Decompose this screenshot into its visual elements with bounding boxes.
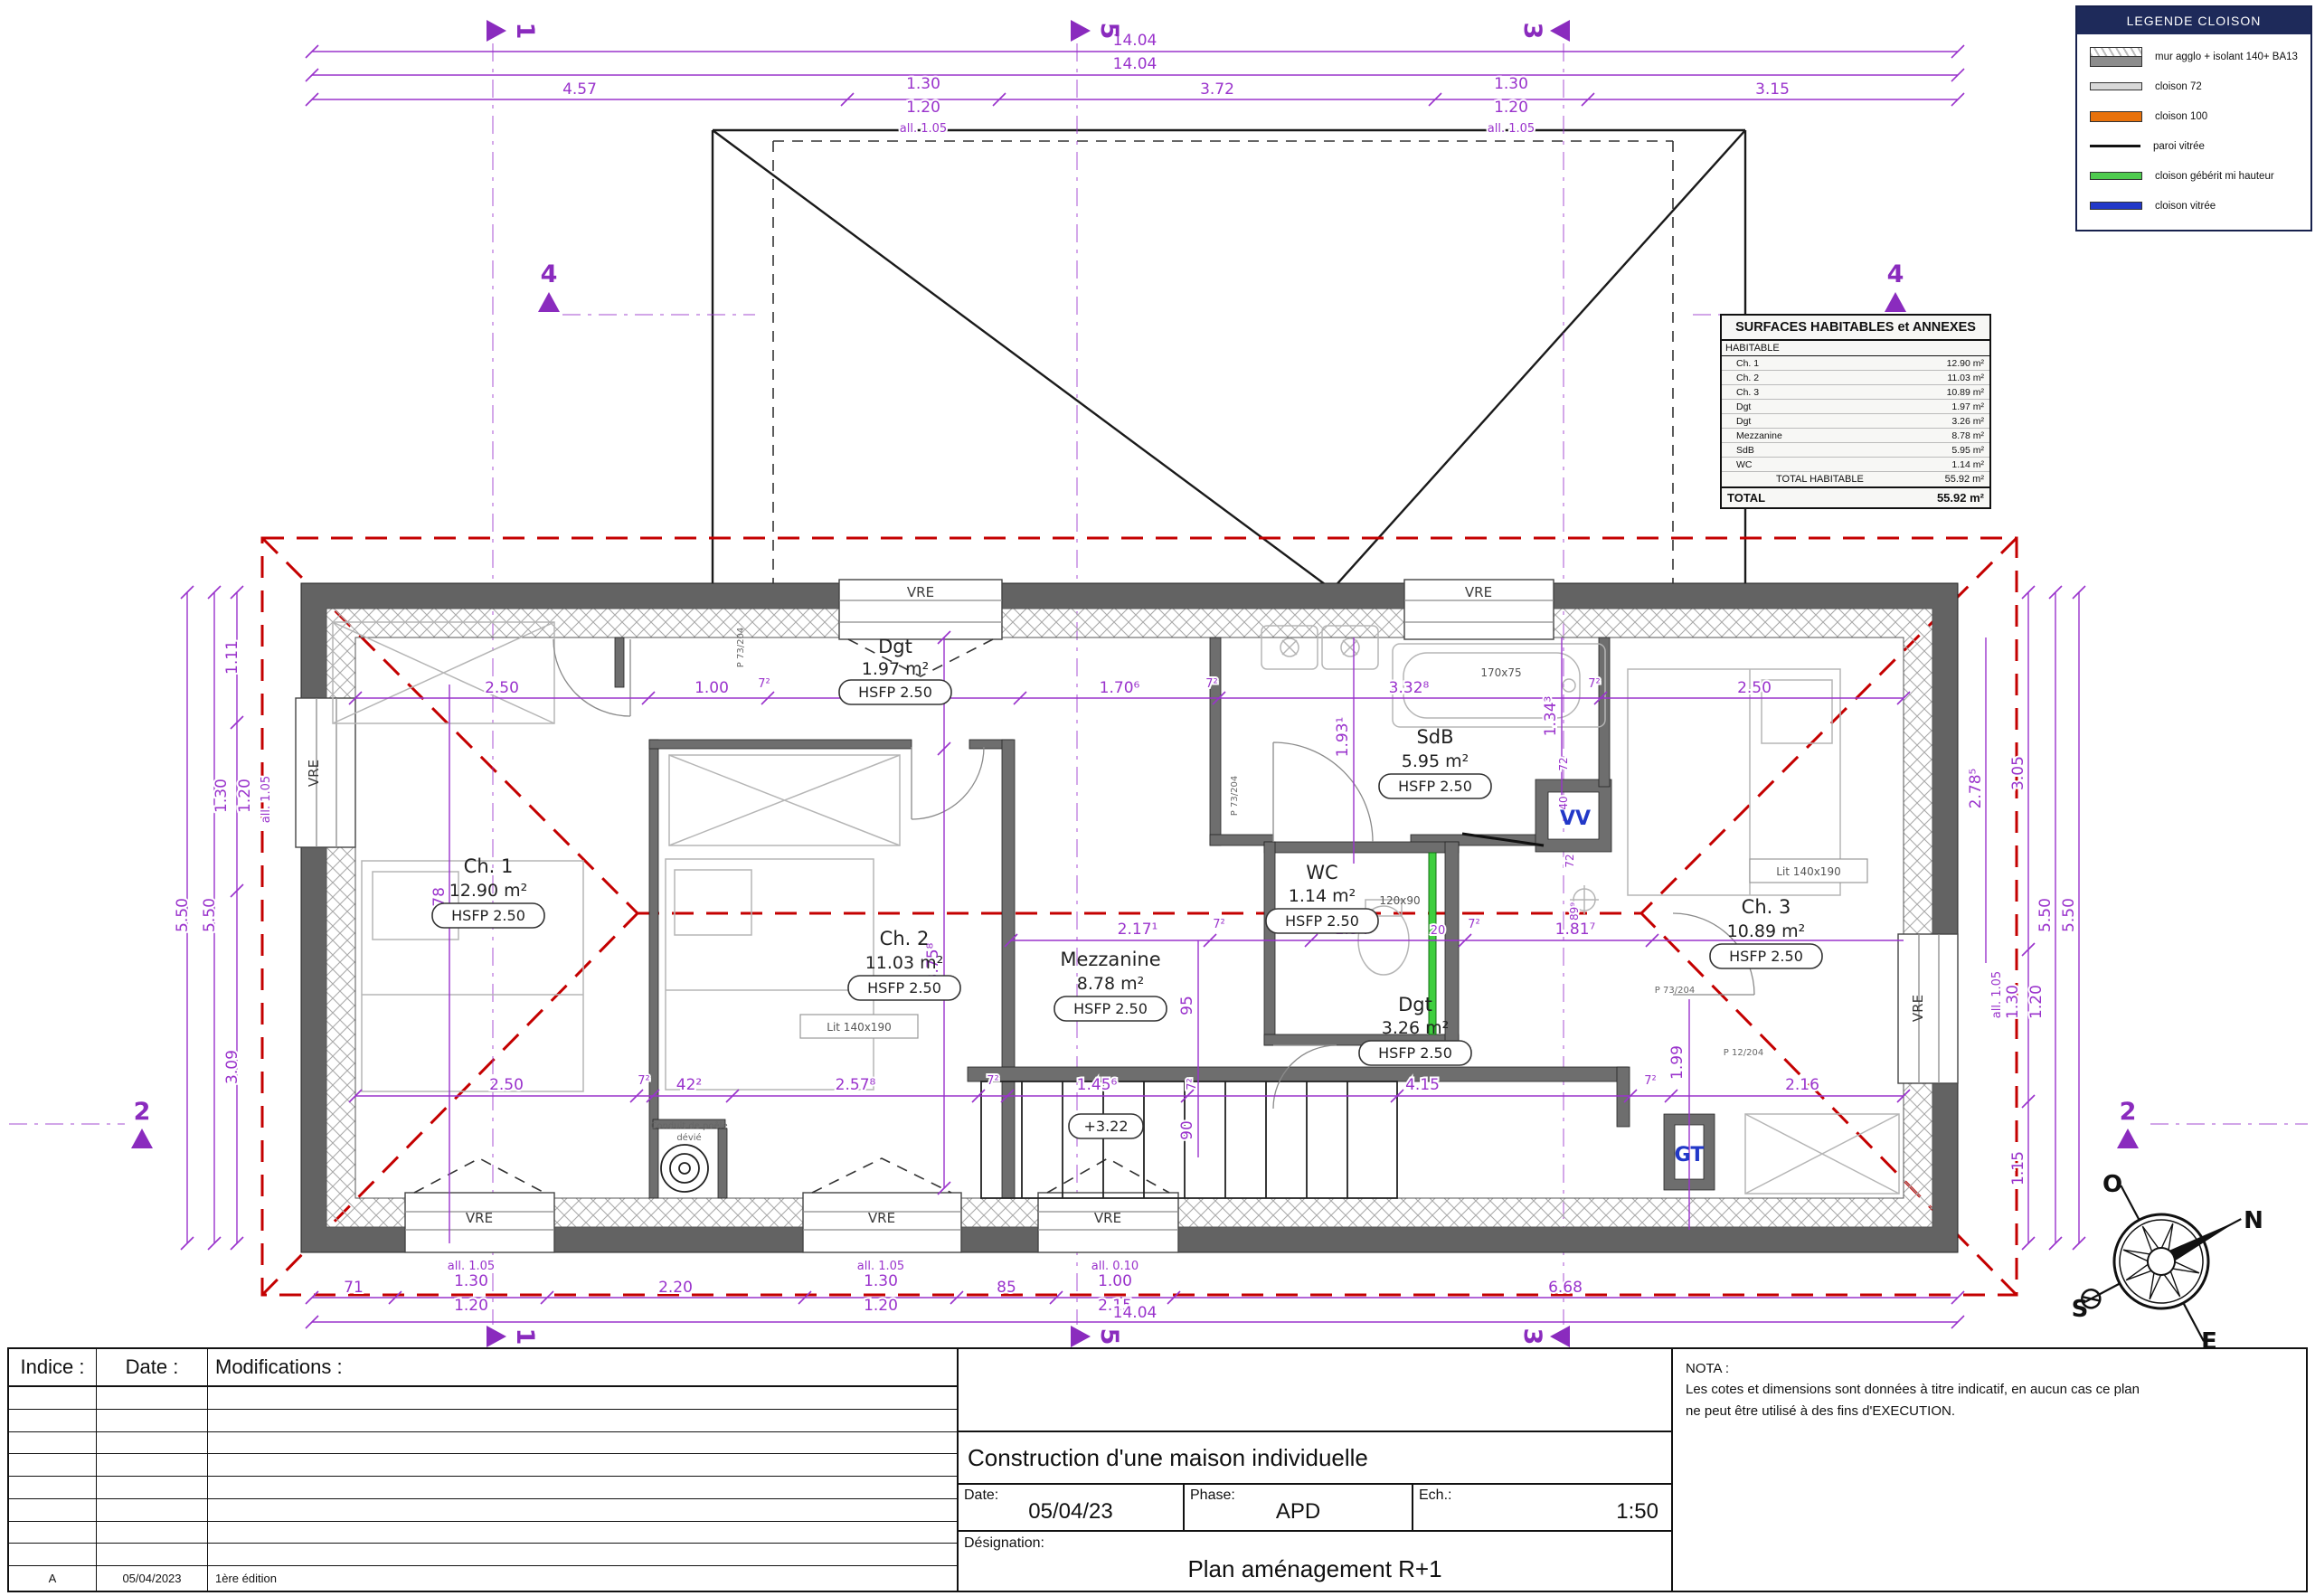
project-title: Construction d'une maison individuelle — [959, 1432, 1671, 1485]
section-marker-3-bottom: 3 — [1518, 1328, 1546, 1346]
date-header: Date : — [97, 1349, 208, 1385]
nota-line-1: Les cotes et dimensions sont données à t… — [1686, 1379, 2293, 1400]
section-marker-4-left: 4 — [541, 260, 558, 288]
dim: all. 1.05 — [1990, 971, 2004, 1018]
compass-south-label: S — [2072, 1296, 2089, 1323]
room-hsfp: HSFP 2.50 — [1378, 1044, 1452, 1062]
row-label: Ch. 2 — [1736, 373, 1759, 383]
room-area: 11.03 m² — [865, 953, 944, 973]
row-label: SdB — [1736, 445, 1754, 456]
dim: 7² — [1213, 918, 1224, 931]
bathtub-size-label: 170x75 — [1480, 666, 1521, 679]
room-area: 10.89 m² — [1727, 921, 1806, 941]
scale-value: 1:50 — [1413, 1499, 1658, 1525]
table-row: Ch. 112.90 m² — [1722, 356, 1989, 371]
dim: all. 1.05 — [1488, 122, 1535, 136]
room-name: Mezzanine — [1060, 949, 1160, 970]
section-marker-1-top: 1 — [511, 23, 539, 40]
door-code: P 12/204 — [1724, 1048, 1763, 1058]
project-block-spacer — [959, 1349, 1671, 1432]
dim: 7² — [758, 677, 770, 691]
row-label: Ch. 3 — [1736, 387, 1759, 398]
bed-ch2 — [666, 859, 874, 1090]
phase-cell: Phase: APD — [1185, 1485, 1413, 1530]
dim: 1.20 — [2027, 985, 2046, 1019]
dim: 14.04 — [1113, 55, 1157, 73]
room-hsfp: HSFP 2.50 — [1285, 912, 1359, 930]
dim: 1.20 — [454, 1297, 488, 1315]
window-left: VRE — [296, 698, 355, 847]
legend-title: LEGENDE CLOISON — [2077, 7, 2310, 34]
room-sdb: SdB 5.95 m² HSFP 2.50 — [1379, 726, 1491, 798]
row-value: 10.89 m² — [1947, 387, 1984, 398]
row-value: 5.95 m² — [1951, 445, 1984, 456]
subtotal-value: 55.92 m² — [1945, 474, 1984, 485]
table-row: Mezzanine8.78 m² — [1722, 429, 1989, 443]
designation-cell: Désignation: Plan aménagement R+1 — [959, 1532, 1671, 1591]
legend-item-mur: mur agglo + isolant 140+ BA13 — [2090, 42, 2305, 71]
room-hsfp: HSFP 2.50 — [1073, 1000, 1148, 1017]
dim: 1.20 — [906, 99, 940, 117]
room-hsfp: HSFP 2.50 — [451, 907, 525, 924]
dim: 1.20 — [1494, 99, 1528, 117]
total-value: 55.92 m² — [1937, 491, 1984, 505]
table-row: Ch. 211.03 m² — [1722, 371, 1989, 385]
dim: 1.30 — [2004, 985, 2022, 1019]
dim: 7² — [1644, 1074, 1656, 1088]
legend-item-cloison-vitree: cloison vitrée — [2090, 191, 2305, 221]
floor-plan-canvas: VRE VRE VRE VRE VRE VRE — [0, 0, 2315, 1347]
row-label: Mezzanine — [1736, 430, 1782, 441]
dim: 1.00 — [1098, 1272, 1132, 1290]
dim: 5.50 — [2060, 898, 2078, 932]
wardrobe-ch2 — [669, 755, 900, 845]
dim: 1.30 — [1494, 75, 1528, 93]
dim: 2.50 — [489, 1076, 524, 1094]
window-label: VRE — [1094, 1210, 1121, 1226]
dim: 4.57 — [562, 80, 597, 99]
room-name: Ch. 1 — [464, 855, 514, 877]
bed-size-label: Lit 140x190 — [1776, 865, 1840, 878]
room-wc: WC 1.14 m² HSFP 2.50 — [1266, 862, 1378, 933]
dim: 1.93¹ — [1334, 717, 1352, 758]
dim: 5.50 — [201, 898, 219, 932]
door-code: P 73/204 — [1230, 776, 1240, 816]
dim: 72 — [1564, 854, 1576, 867]
date-cell: Date: 05/04/23 — [959, 1485, 1185, 1530]
project-block: Construction d'une maison individuelle D… — [959, 1349, 1673, 1591]
legend-item-label: mur agglo + isolant 140+ BA13 — [2155, 52, 2298, 62]
room-mezzanine: Mezzanine 8.78 m² HSFP 2.50 — [1054, 949, 1167, 1021]
window-label: VRE — [1465, 584, 1492, 600]
indice-header: Indice : — [9, 1349, 97, 1385]
dim: 2.17¹ — [1118, 921, 1158, 939]
dim: 7² — [1588, 677, 1600, 691]
dim: 72 — [1557, 757, 1570, 770]
revision-empty-row — [9, 1432, 957, 1455]
legend-cloison: LEGENDE CLOISON mur agglo + isolant 140+… — [2075, 5, 2312, 231]
revision-empty-row — [9, 1387, 957, 1410]
dim: 90 — [1178, 1120, 1196, 1140]
room-area: 8.78 m² — [1077, 974, 1144, 994]
drawing-sheet: VRE VRE VRE VRE VRE VRE — [0, 0, 2315, 1596]
dim: 71 — [344, 1279, 364, 1297]
dim: 1.11 — [223, 640, 241, 675]
row-value: 8.78 m² — [1951, 430, 1984, 441]
revision-empty-row — [9, 1410, 957, 1432]
roof-projection-lines — [713, 130, 1745, 590]
revision-empty-row — [9, 1499, 957, 1522]
project-meta-row: Date: 05/04/23 Phase: APD Ech.: 1:50 — [959, 1485, 1671, 1532]
revision-modification: 1ère édition — [208, 1566, 957, 1591]
compass-north-label: N — [2244, 1207, 2263, 1234]
table-row: Dgt1.97 m² — [1722, 400, 1989, 414]
legend-swatch-cloison100-icon — [2090, 111, 2142, 122]
legend-swatch-cloison72-icon — [2090, 82, 2142, 90]
legend-swatch-geberit-icon — [2090, 172, 2142, 180]
row-label: Dgt — [1736, 416, 1751, 427]
row-label: Dgt — [1736, 401, 1751, 412]
window-label: VRE — [907, 584, 934, 600]
revision-indice: A — [9, 1566, 97, 1591]
table-row: WC1.14 m² — [1722, 458, 1989, 472]
room-area: 5.95 m² — [1402, 751, 1469, 771]
room-name: Ch. 2 — [880, 928, 930, 949]
dim: 1.20 — [864, 1297, 898, 1315]
dim: 1.30 — [906, 75, 940, 93]
revision-empty-row — [9, 1477, 957, 1499]
crossed-box-ch3 — [1745, 1114, 1899, 1194]
nota-line-2: ne peut être utilisé à des fins d'EXECUT… — [1686, 1401, 2293, 1421]
window-top-2: VRE — [1404, 580, 1554, 639]
section-marker-1-bottom: 1 — [511, 1328, 539, 1346]
dim: 2.16 — [1785, 1076, 1819, 1094]
designation-label: Désignation: — [964, 1535, 1044, 1552]
compass-east-label: E — [2201, 1328, 2217, 1347]
section-marker-4-right: 4 — [1887, 260, 1904, 288]
legend-swatch-mur-icon — [2090, 47, 2142, 67]
room-name: Dgt — [878, 636, 912, 657]
vv-shaft-label: VV — [1560, 807, 1591, 830]
dim: all. 0.10 — [1091, 1260, 1139, 1273]
dim: 2.78⁵ — [1967, 769, 1985, 809]
compass-west-label: O — [2102, 1171, 2122, 1198]
dim: 7² — [1205, 677, 1217, 691]
window-label: VRE — [1910, 995, 1926, 1022]
row-value: 3.26 m² — [1951, 416, 1984, 427]
dim: 2.57⁸ — [836, 1076, 876, 1094]
room-labels: Ch. 1 12.90 m² HSFP 2.50 Ch. 2 11.03 m² … — [432, 636, 1822, 1065]
level-label: +3.22 — [1083, 1118, 1128, 1135]
legend-item-cloison100: cloison 100 — [2090, 101, 2305, 131]
designation-value: Plan aménagement R+1 — [959, 1555, 1671, 1583]
title-block: Indice : Date : Modifications : A 05/04/… — [7, 1347, 2308, 1592]
window-bottom-2: VRE — [803, 1158, 961, 1252]
surfaces-section: HABITABLE — [1722, 341, 1989, 356]
revision-empty-row — [9, 1544, 957, 1566]
modifications-header: Modifications : — [208, 1349, 957, 1385]
room-area: 1.14 m² — [1289, 886, 1356, 906]
dim: 1.45⁶ — [1077, 1076, 1118, 1094]
dim: 2.50 — [1737, 679, 1772, 697]
dim: all. 1.05 — [900, 122, 947, 136]
dim: 89⁹ — [1568, 902, 1581, 921]
dim: 1.30 — [864, 1272, 898, 1290]
door-code: P 73/204 — [1655, 986, 1695, 996]
dim: 1.30 — [454, 1272, 488, 1290]
dim: 14.04 — [1113, 1304, 1157, 1322]
legend-item-geberit: cloison gébérit mi hauteur — [2090, 161, 2305, 191]
dim: 6.68 — [1548, 1279, 1583, 1297]
dim: 1.70⁶ — [1100, 679, 1140, 697]
room-hsfp: HSFP 2.50 — [858, 684, 932, 701]
row-value: 1.97 m² — [1951, 401, 1984, 412]
section-marker-3-top: 3 — [1518, 23, 1546, 40]
stove-conduit-label: Conduit de poêle — [650, 1120, 727, 1131]
row-value: 11.03 m² — [1947, 373, 1984, 383]
dim: 2.50 — [485, 679, 519, 697]
row-label: WC — [1736, 459, 1753, 470]
stove-conduit-label-2: dévié — [676, 1132, 701, 1143]
dim: 1.30 — [213, 779, 231, 813]
surfaces-subtotal-row: TOTAL HABITABLE55.92 m² — [1722, 472, 1989, 488]
room-name: SdB — [1416, 726, 1453, 748]
dim: 5.50 — [2036, 898, 2055, 932]
room-area: 12.90 m² — [449, 881, 528, 901]
table-row: SdB5.95 m² — [1722, 443, 1989, 458]
section-marker-2-left: 2 — [134, 1098, 151, 1126]
dim: all. 1.05 — [857, 1260, 904, 1273]
room-hsfp: HSFP 2.50 — [1729, 948, 1803, 965]
furniture — [333, 622, 1899, 1194]
dim: 3.05 — [2009, 756, 2027, 790]
stove-conduit — [661, 1145, 708, 1192]
row-value: 12.90 m² — [1947, 358, 1984, 369]
nota-block: NOTA : Les cotes et dimensions sont donn… — [1673, 1349, 2306, 1591]
surfaces-total-row: TOTAL55.92 m² — [1722, 488, 1989, 507]
dim: 5.50 — [174, 898, 192, 932]
legend-swatch-vitree-icon — [2090, 202, 2142, 210]
dim: 3.09 — [223, 1050, 241, 1084]
dim: 3.32⁸ — [1389, 679, 1430, 697]
dim: 3.15 — [1755, 80, 1790, 99]
subtotal-label: TOTAL HABITABLE — [1776, 474, 1864, 485]
dim: 4.15 — [1405, 1076, 1440, 1094]
dim: all. 1.05 — [260, 776, 273, 823]
date-value: 05/04/23 — [959, 1499, 1183, 1525]
revision-row-a: A 05/04/2023 1ère édition — [9, 1566, 957, 1591]
row-value: 1.14 m² — [1951, 459, 1984, 470]
revision-table: Indice : Date : Modifications : A 05/04/… — [9, 1349, 959, 1591]
dim: 7² — [1186, 1078, 1199, 1090]
window-label: VRE — [306, 760, 322, 787]
window-label: VRE — [868, 1210, 895, 1226]
phase-value: APD — [1185, 1499, 1412, 1525]
revision-empty-row — [9, 1522, 957, 1544]
window-bottom-3: VRE — [1038, 1158, 1178, 1252]
dim: 1.15 — [2009, 1151, 2027, 1185]
legend-item-label: cloison 72 — [2155, 81, 2202, 92]
room-hsfp: HSFP 2.50 — [867, 979, 941, 996]
total-label: TOTAL — [1727, 491, 1765, 505]
dim: 42² — [676, 1076, 702, 1094]
room-ch3: Ch. 3 10.89 m² HSFP 2.50 — [1710, 896, 1822, 968]
revision-header-row: Indice : Date : Modifications : — [9, 1349, 957, 1387]
legend-item-label: cloison vitrée — [2155, 201, 2216, 212]
window-right: VRE — [1898, 934, 1958, 1083]
dim: 85 — [997, 1279, 1016, 1297]
dim: all. 1.05 — [448, 1260, 495, 1273]
section-marker-2-right: 2 — [2120, 1098, 2137, 1126]
surfaces-table: SURFACES HABITABLES et ANNEXES HABITABLE… — [1720, 314, 1991, 509]
room-area: 1.97 m² — [862, 659, 929, 679]
dim: 7² — [638, 1074, 649, 1088]
legend-item-label: cloison 100 — [2155, 111, 2207, 122]
section-marker-5-top: 5 — [1095, 23, 1123, 40]
dim: 7² — [987, 1074, 998, 1088]
dim: 1.81⁷ — [1555, 921, 1596, 939]
revision-empty-row — [9, 1454, 957, 1477]
scale-cell: Ech.: 1:50 — [1413, 1485, 1671, 1530]
roof-window-size-label: 120x90 — [1379, 894, 1420, 907]
dim: 1.34³ — [1542, 696, 1560, 737]
nota-title: NOTA : — [1686, 1358, 2293, 1379]
door-code: P 73/204 — [736, 628, 746, 667]
dim: 2.20 — [658, 1279, 693, 1297]
legend-item-paroi-vitree: paroi vitrée — [2090, 131, 2305, 161]
room-area: 3.26 m² — [1382, 1018, 1449, 1038]
dim: 95 — [1178, 996, 1196, 1015]
legend-item-cloison72: cloison 72 — [2090, 71, 2305, 101]
misc-labels: VV GT Lit 140x190 Lit 140x190 170x75 120… — [650, 628, 1867, 1166]
legend-swatch-paroi-icon — [2090, 145, 2140, 147]
dim: 3.72 — [1200, 80, 1234, 99]
dim: 7² — [1468, 918, 1479, 931]
section-marker-5-bottom: 5 — [1095, 1328, 1123, 1346]
surfaces-title: SURFACES HABITABLES et ANNEXES — [1722, 316, 1989, 341]
room-name: WC — [1306, 862, 1337, 883]
gt-shaft-label: GT — [1675, 1144, 1705, 1166]
legend-item-label: paroi vitrée — [2153, 141, 2205, 152]
table-row: Ch. 310.89 m² — [1722, 385, 1989, 400]
dim: 20 — [1431, 924, 1446, 938]
window-bottom-1: VRE — [405, 1158, 554, 1252]
room-name: Ch. 3 — [1742, 896, 1791, 918]
dim: 1.20 — [236, 779, 254, 813]
dim: 1.00 — [694, 679, 729, 697]
room-name: Dgt — [1398, 994, 1432, 1015]
table-row: Dgt3.26 m² — [1722, 414, 1989, 429]
room-hsfp: HSFP 2.50 — [1398, 778, 1472, 795]
row-label: Ch. 1 — [1736, 358, 1759, 369]
bed-size-label: Lit 140x190 — [827, 1021, 891, 1034]
revision-date: 05/04/2023 — [97, 1566, 208, 1591]
window-label: VRE — [466, 1210, 493, 1226]
legend-item-label: cloison gébérit mi hauteur — [2155, 171, 2274, 182]
dim: 1.99 — [1668, 1045, 1687, 1080]
